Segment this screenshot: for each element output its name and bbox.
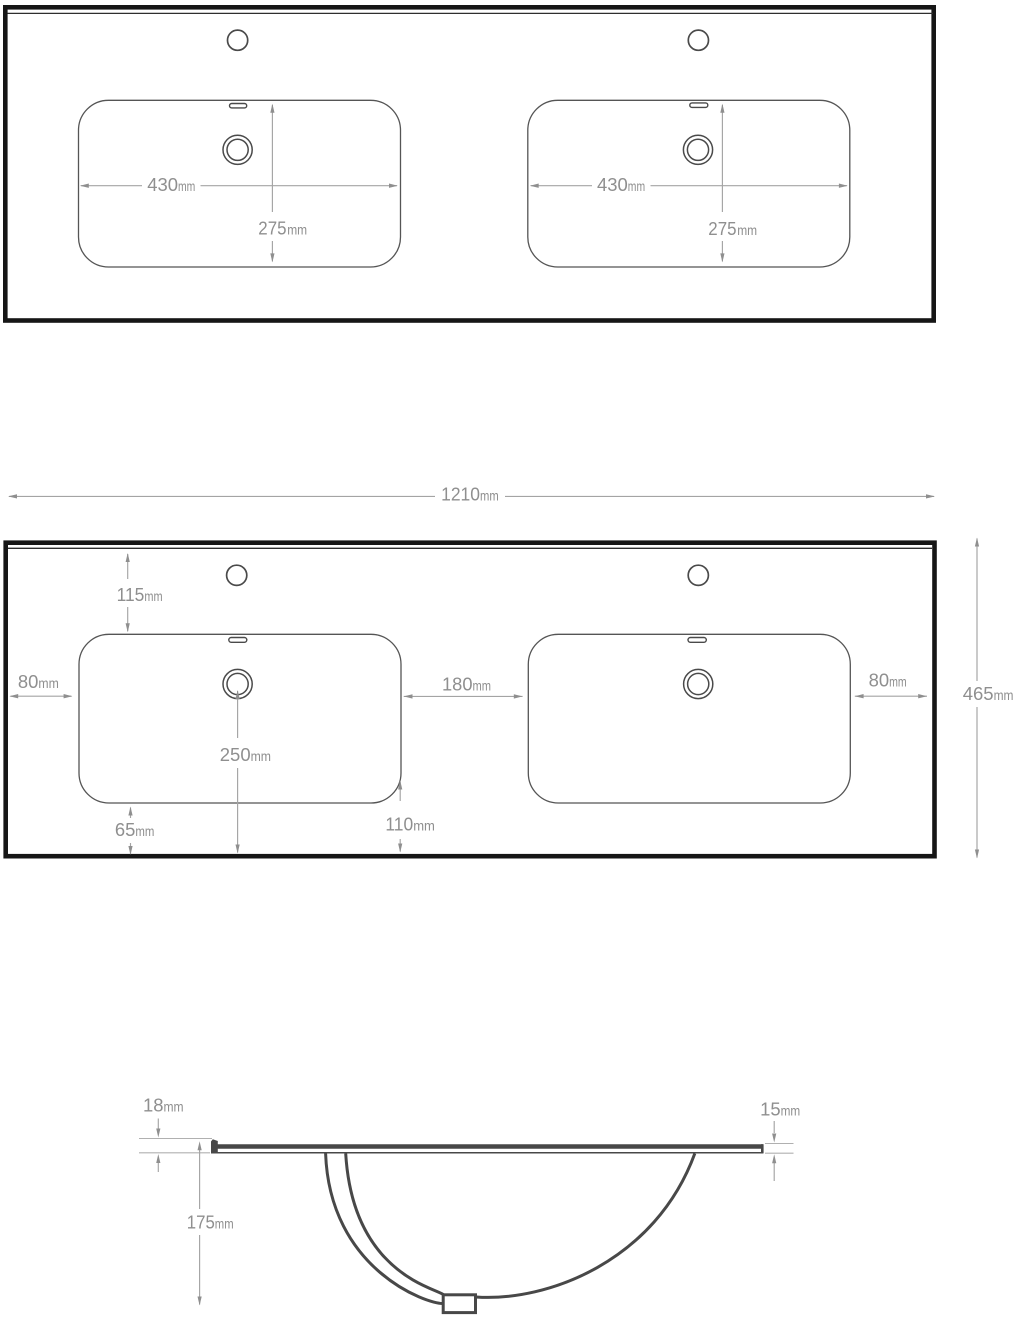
- svg-text:mm: mm: [38, 675, 58, 691]
- svg-text:15: 15: [760, 1098, 781, 1119]
- svg-text:mm: mm: [628, 178, 645, 194]
- svg-text:430: 430: [597, 174, 628, 195]
- svg-text:275: 275: [708, 218, 736, 239]
- svg-text:mm: mm: [737, 222, 757, 238]
- svg-text:18: 18: [143, 1095, 164, 1116]
- svg-text:250: 250: [220, 744, 251, 765]
- svg-text:1210: 1210: [441, 483, 480, 504]
- svg-text:mm: mm: [994, 687, 1014, 703]
- svg-text:mm: mm: [287, 222, 307, 238]
- svg-text:65: 65: [115, 819, 135, 840]
- svg-text:mm: mm: [781, 1102, 801, 1118]
- svg-text:mm: mm: [215, 1216, 234, 1232]
- svg-text:mm: mm: [480, 487, 499, 503]
- svg-text:115: 115: [117, 584, 145, 605]
- svg-text:mm: mm: [135, 823, 154, 839]
- svg-text:mm: mm: [251, 748, 271, 764]
- svg-text:175: 175: [187, 1212, 215, 1233]
- svg-text:430: 430: [147, 174, 178, 195]
- svg-text:mm: mm: [473, 678, 492, 694]
- svg-text:465: 465: [963, 683, 994, 704]
- svg-text:mm: mm: [164, 1099, 184, 1115]
- svg-text:mm: mm: [413, 818, 435, 834]
- svg-text:mm: mm: [144, 588, 162, 604]
- svg-text:110: 110: [385, 814, 413, 835]
- svg-text:mm: mm: [889, 674, 907, 690]
- svg-text:275: 275: [258, 218, 286, 239]
- svg-text:180: 180: [442, 674, 473, 695]
- svg-text:mm: mm: [178, 178, 195, 194]
- svg-text:80: 80: [869, 670, 890, 691]
- svg-text:80: 80: [18, 671, 39, 692]
